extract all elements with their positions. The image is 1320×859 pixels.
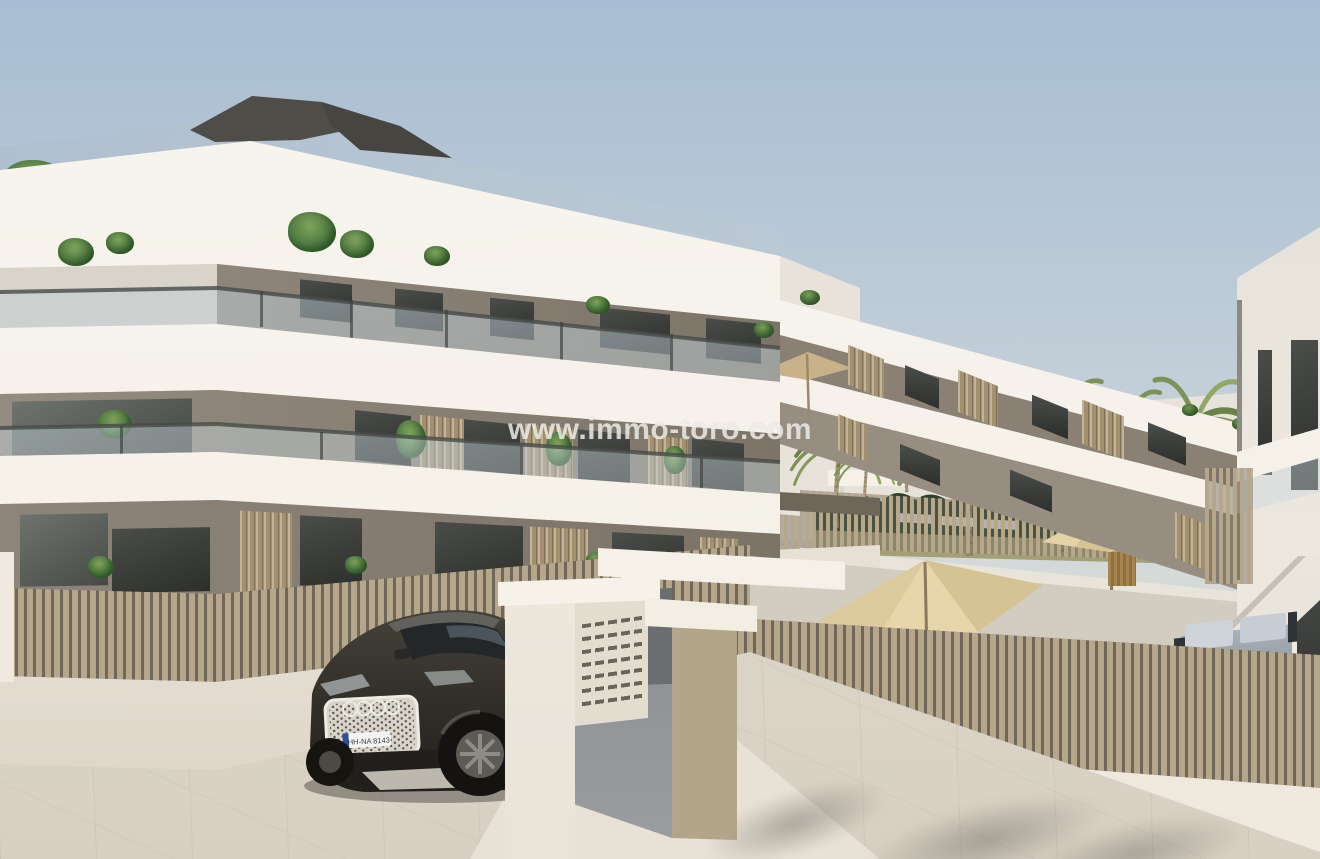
- sofa-cushion: [1185, 619, 1233, 650]
- sofa-pillow-dark: [1288, 612, 1297, 643]
- sofa-cushion: [1240, 613, 1286, 644]
- watermark: www.immo-toro.com: [505, 414, 815, 446]
- architectural-render: HH-NA 8143 www.immo-toro.com: [0, 0, 1320, 859]
- mailbox-panel: [582, 616, 642, 714]
- car-mirror: [394, 648, 410, 660]
- stair-slat-railing: [1205, 468, 1253, 584]
